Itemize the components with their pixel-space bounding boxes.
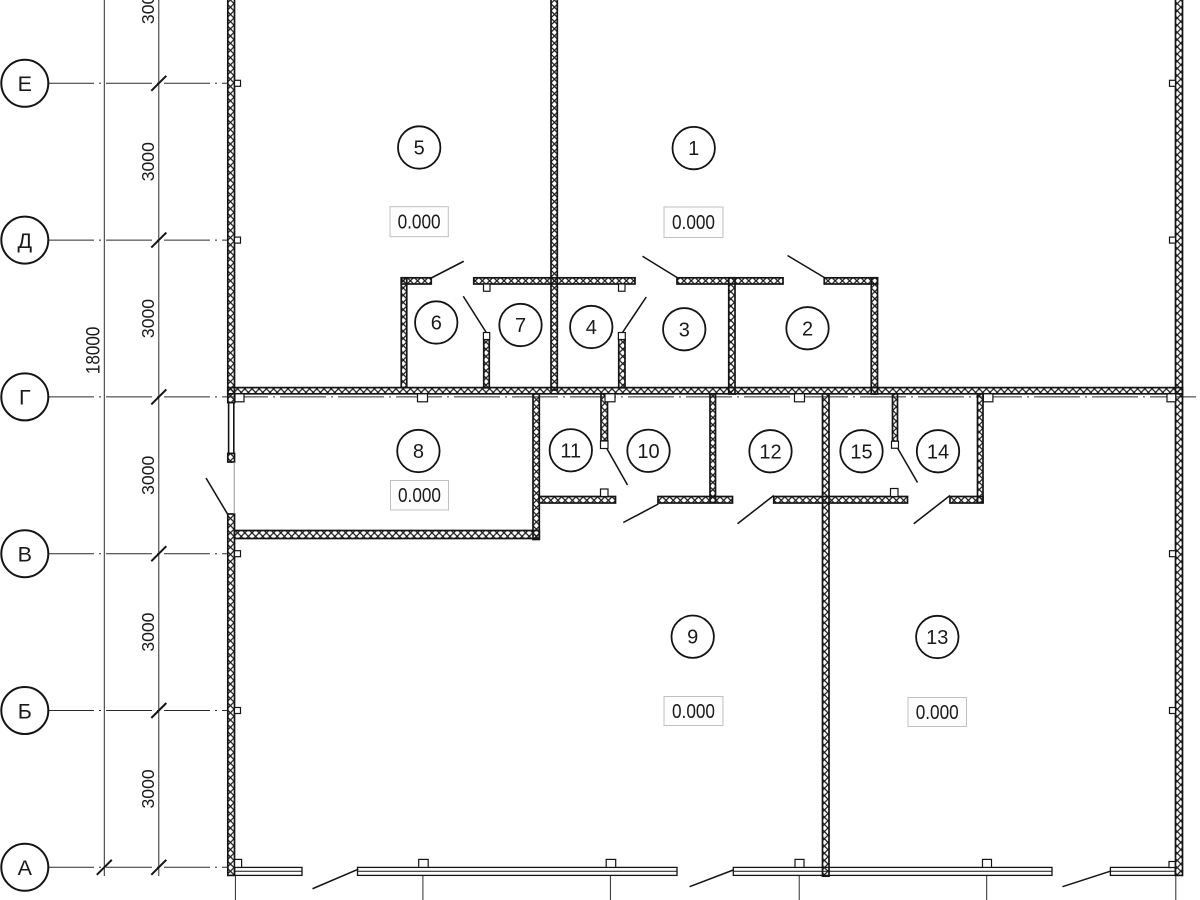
svg-text:7: 7 [515,315,526,337]
svg-text:0.000: 0.000 [398,485,441,507]
svg-text:15: 15 [850,441,872,463]
svg-text:Д: Д [18,229,33,253]
svg-text:3000: 3000 [138,769,158,808]
svg-text:0.000: 0.000 [672,701,715,723]
svg-text:3000: 3000 [138,142,158,181]
svg-text:6: 6 [431,313,442,335]
svg-text:В: В [18,543,32,567]
svg-text:0.000: 0.000 [398,212,441,234]
svg-text:3000: 3000 [138,299,158,338]
svg-text:14: 14 [927,441,949,463]
svg-text:Г: Г [19,386,31,410]
svg-text:3000: 3000 [138,0,158,24]
svg-text:1: 1 [688,138,699,160]
svg-text:13: 13 [926,627,948,649]
svg-text:9: 9 [687,627,698,649]
svg-text:8: 8 [413,441,424,463]
svg-text:11: 11 [560,440,581,462]
svg-text:5: 5 [414,138,425,160]
svg-text:2: 2 [802,318,813,340]
svg-text:3000: 3000 [138,456,158,495]
svg-text:Е: Е [18,72,32,96]
svg-text:4: 4 [586,317,597,339]
svg-text:3000: 3000 [138,612,158,651]
svg-text:3: 3 [679,319,690,341]
svg-text:18000: 18000 [82,327,104,375]
svg-text:Б: Б [18,699,32,723]
svg-text:А: А [18,856,33,880]
svg-text:0.000: 0.000 [672,212,715,234]
svg-text:0.000: 0.000 [916,702,959,724]
svg-text:10: 10 [637,441,659,463]
svg-text:12: 12 [759,441,781,463]
